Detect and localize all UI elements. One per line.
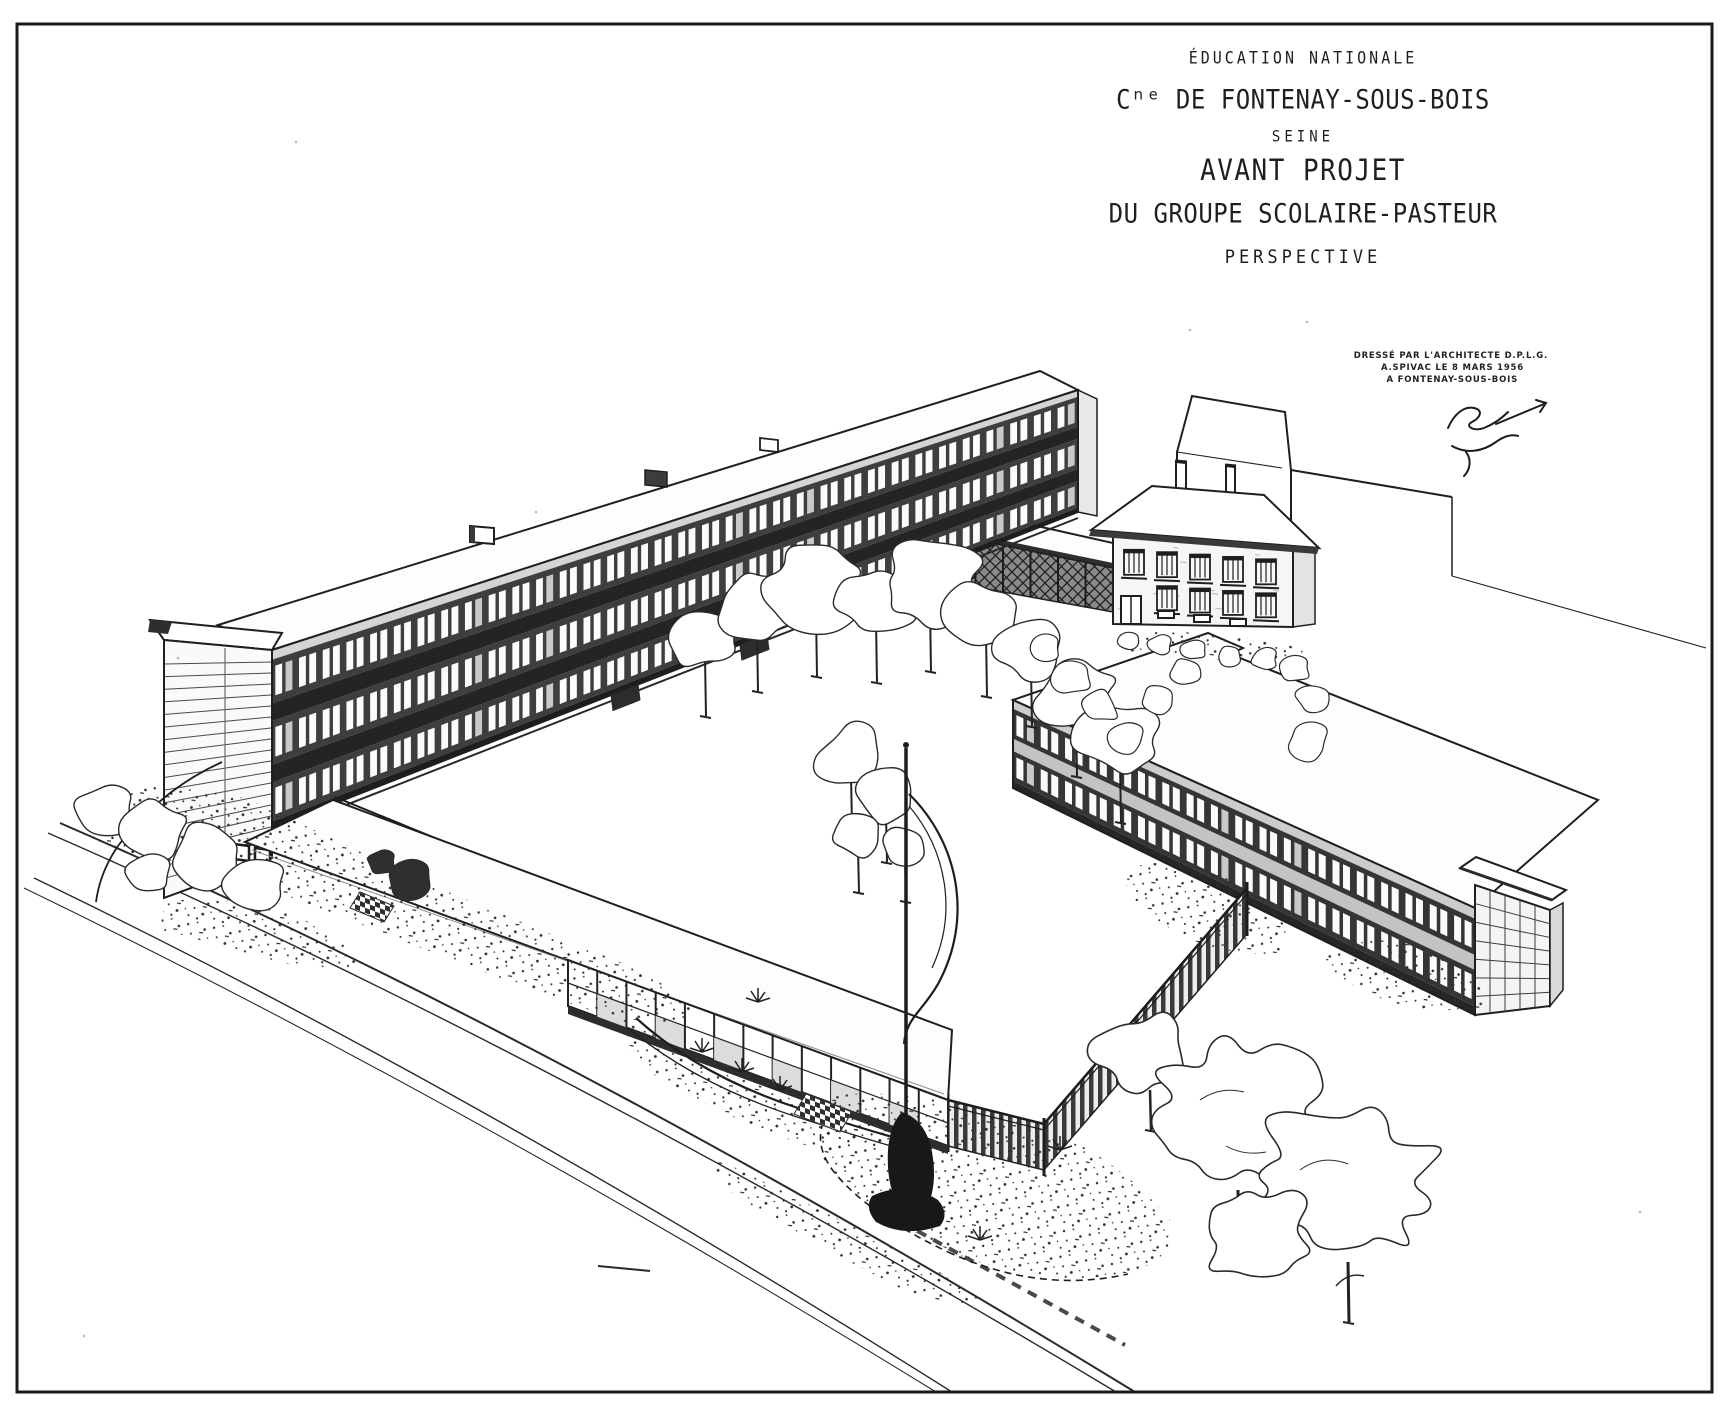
title-department: SEINE xyxy=(953,128,1653,146)
title-commune: Cⁿᵉ DE FONTENAY-SOUS-BOIS xyxy=(953,84,1653,115)
title-ministry: ÉDUCATION NATIONALE xyxy=(953,48,1653,68)
title-project-line2: DU GROUPE SCOLAIRE-PASTEUR xyxy=(953,198,1653,229)
title-drawing-type: PERSPECTIVE xyxy=(953,246,1653,268)
drawing-sheet: ÉDUCATION NATIONALE Cⁿᵉ DE FONTENAY-SOUS… xyxy=(0,0,1733,1425)
architect-signature xyxy=(1448,400,1546,476)
architect-note: DRESSÉ PAR L'ARCHITECTE D.P.L.G. A.SPIVA… xyxy=(1320,350,1548,386)
title-project-line1: AVANT PROJET xyxy=(953,154,1653,188)
architect-note-line2: A.SPIVAC LE 8 MARS 1956 xyxy=(1320,362,1548,374)
architect-note-line1: DRESSÉ PAR L'ARCHITECTE D.P.L.G. xyxy=(1320,350,1548,362)
architect-note-line3: A FONTENAY-SOUS-BOIS xyxy=(1320,374,1548,386)
